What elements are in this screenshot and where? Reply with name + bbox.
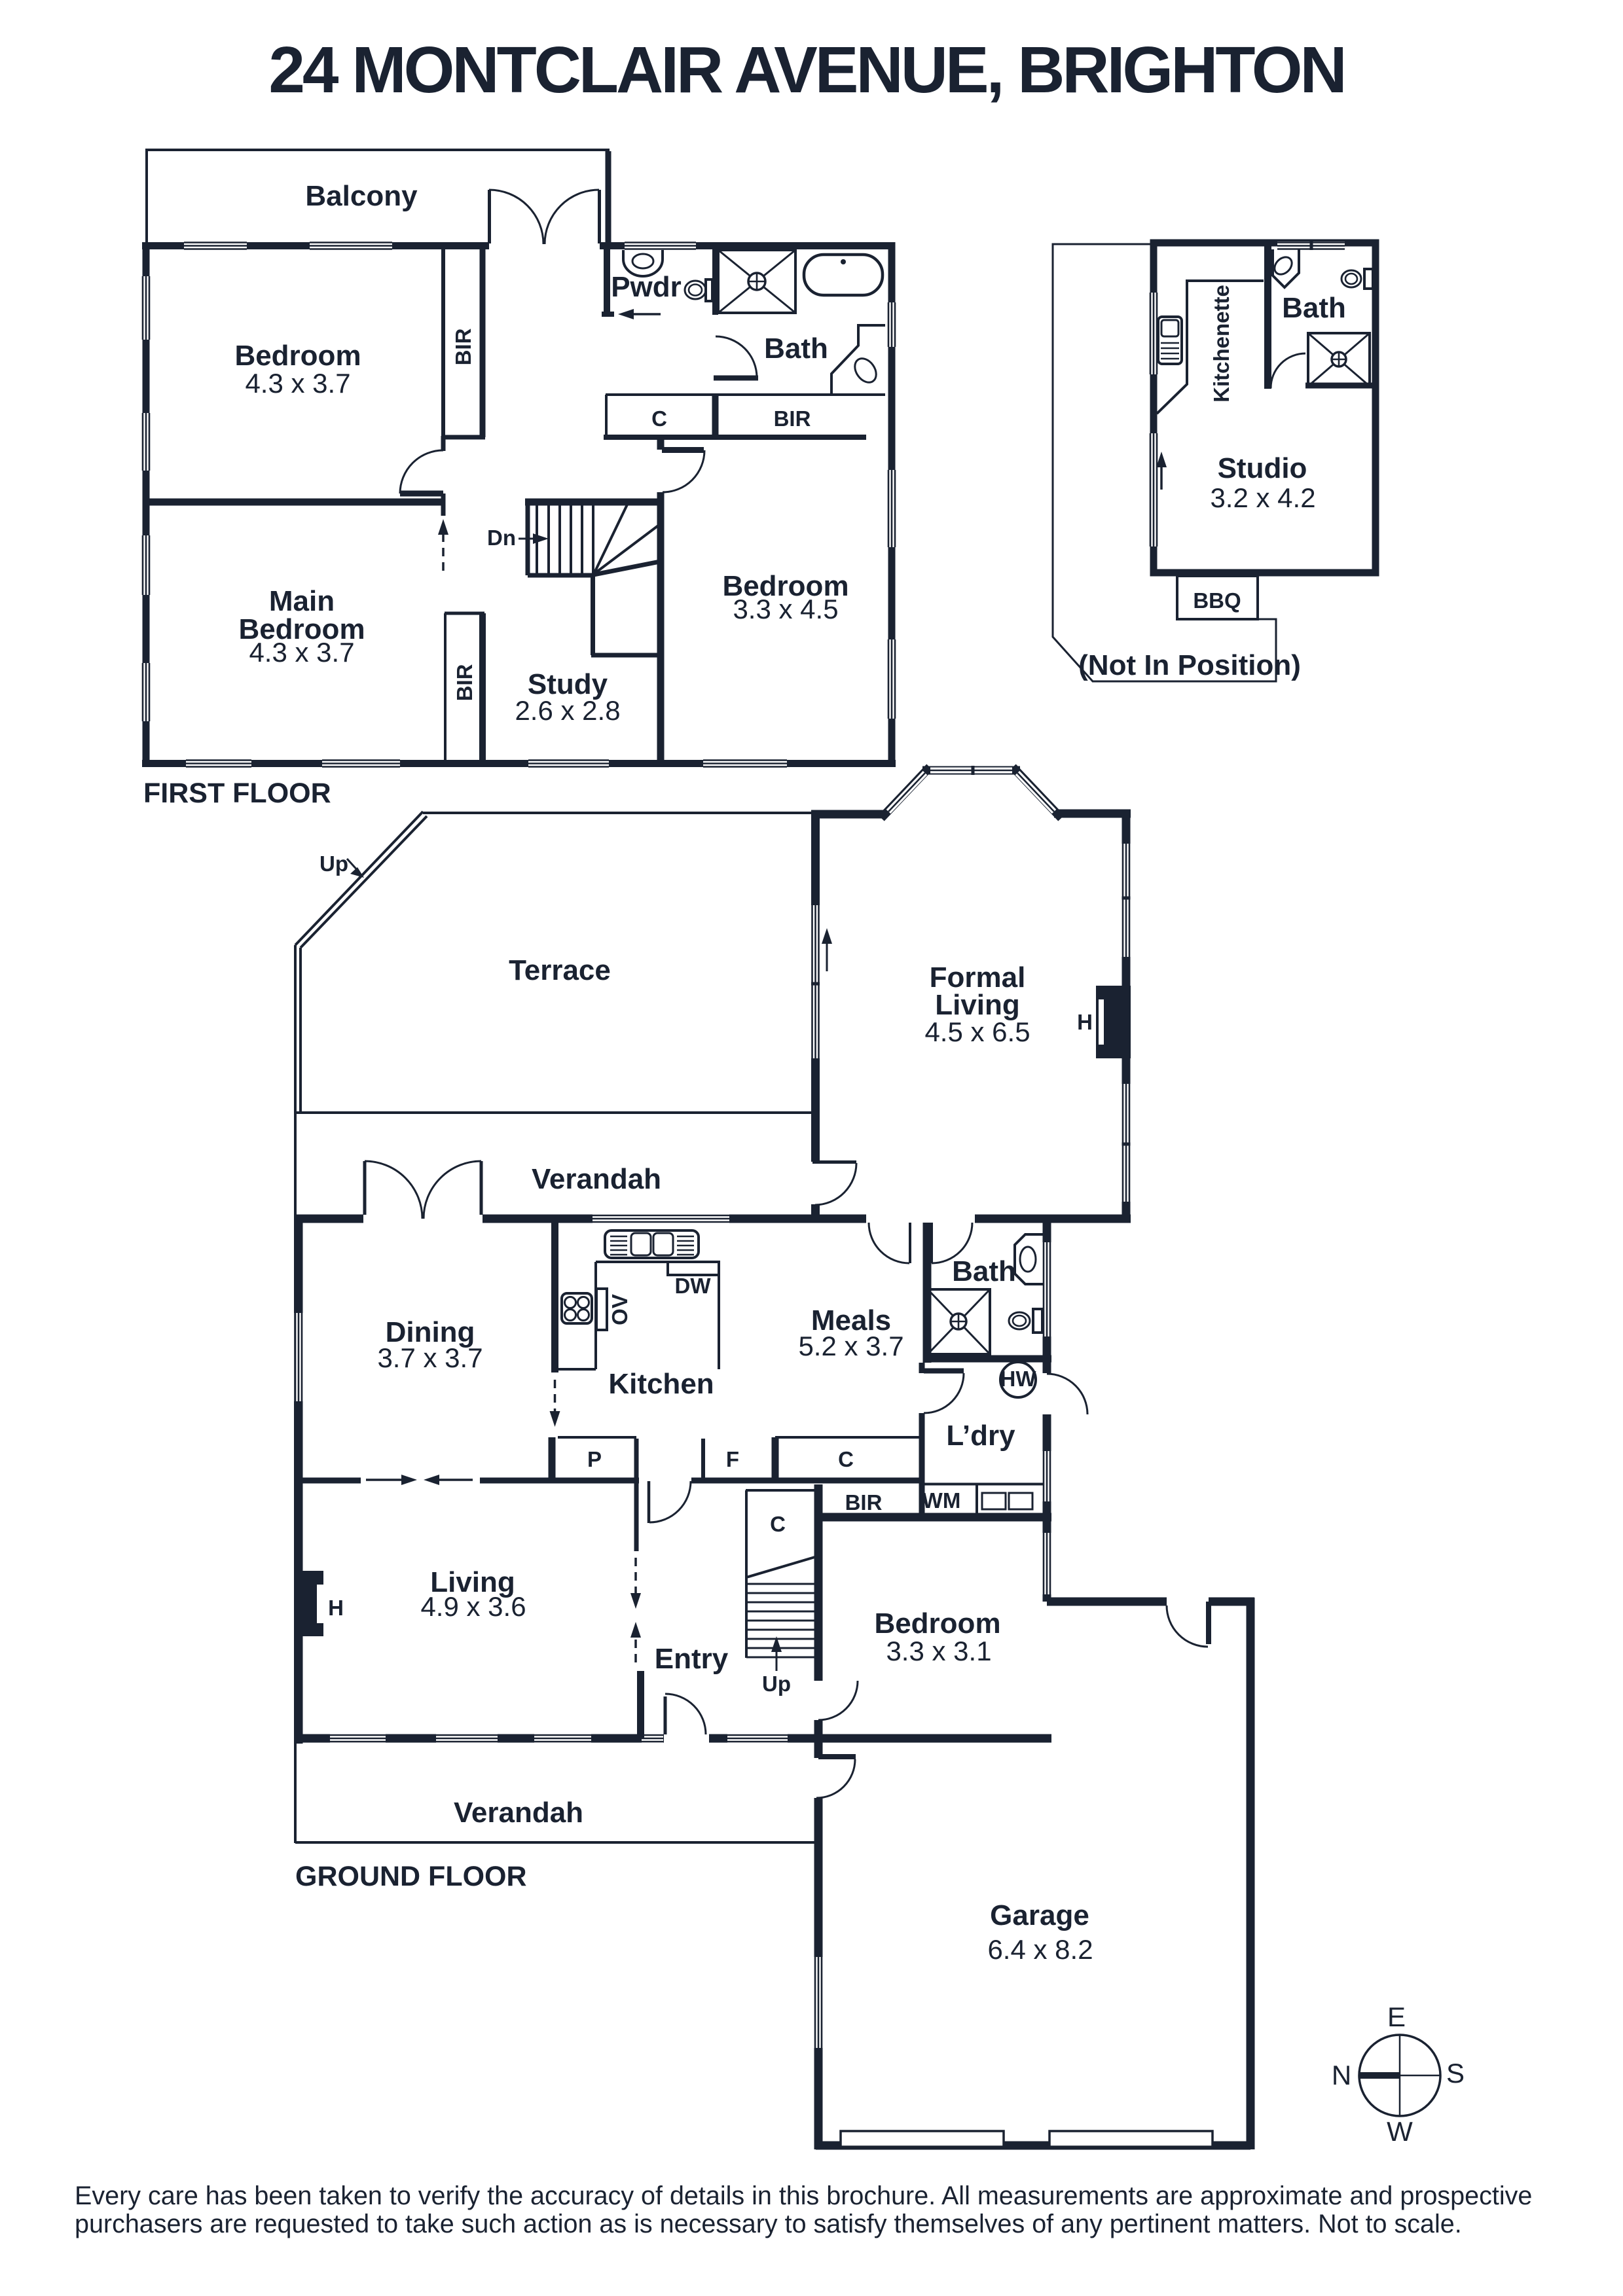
svg-text:purchasers are requested to ta: purchasers are requested to take such ac… xyxy=(75,2210,1462,2238)
svg-text:Every care has been taken to v: Every care has been taken to verify the … xyxy=(75,2181,1532,2210)
svg-text:BIR: BIR xyxy=(451,328,475,365)
svg-text:5.2 x 3.7: 5.2 x 3.7 xyxy=(798,1331,903,1361)
svg-text:Dn: Dn xyxy=(487,526,516,550)
svg-text:BIR: BIR xyxy=(452,664,477,701)
svg-text:H: H xyxy=(1077,1010,1093,1034)
svg-text:4.3 x 3.7: 4.3 x 3.7 xyxy=(245,368,350,399)
svg-text:Up: Up xyxy=(319,852,348,876)
svg-text:Garage: Garage xyxy=(990,1899,1089,1931)
svg-text:Balcony: Balcony xyxy=(305,180,418,212)
svg-text:3.2 x 4.2: 3.2 x 4.2 xyxy=(1210,482,1315,513)
svg-text:DW: DW xyxy=(675,1274,712,1298)
svg-text:Kitchenette: Kitchenette xyxy=(1209,285,1233,403)
svg-text:(Not In Position): (Not In Position) xyxy=(1078,649,1301,681)
svg-text:OV: OV xyxy=(608,1294,632,1325)
svg-text:4.3 x 3.7: 4.3 x 3.7 xyxy=(249,637,354,668)
svg-text:Terrace: Terrace xyxy=(509,954,611,986)
svg-text:Entry: Entry xyxy=(655,1643,729,1675)
svg-text:4.5 x 6.5: 4.5 x 6.5 xyxy=(924,1016,1030,1047)
svg-text:GROUND FLOOR: GROUND FLOOR xyxy=(295,1861,527,1892)
svg-text:Main: Main xyxy=(269,585,335,617)
svg-text:S: S xyxy=(1446,2058,1465,2089)
svg-text:C: C xyxy=(651,406,667,431)
svg-text:Verandah: Verandah xyxy=(454,1797,583,1829)
svg-text:Bedroom: Bedroom xyxy=(234,340,361,372)
svg-text:HW: HW xyxy=(1000,1367,1037,1391)
svg-text:WM: WM xyxy=(922,1488,961,1513)
svg-text:3.7 x 3.7: 3.7 x 3.7 xyxy=(377,1342,483,1373)
svg-text:6.4 x 8.2: 6.4 x 8.2 xyxy=(987,1934,1093,1965)
svg-text:P: P xyxy=(587,1447,602,1471)
svg-text:BIR: BIR xyxy=(845,1490,883,1515)
svg-text:Bath: Bath xyxy=(1282,292,1346,324)
svg-text:Bath: Bath xyxy=(952,1255,1016,1287)
svg-text:E: E xyxy=(1387,2001,1406,2032)
svg-text:Bath: Bath xyxy=(764,332,828,365)
svg-text:H: H xyxy=(328,1596,344,1620)
svg-text:3.3 x 4.5: 3.3 x 4.5 xyxy=(733,594,838,624)
svg-text:L’dry: L’dry xyxy=(946,1420,1015,1452)
svg-text:Studio: Studio xyxy=(1218,452,1307,484)
svg-text:Bedroom: Bedroom xyxy=(874,1607,1000,1640)
svg-text:Verandah: Verandah xyxy=(532,1163,661,1195)
svg-text:F: F xyxy=(726,1447,739,1471)
svg-text:Kitchen: Kitchen xyxy=(608,1368,714,1400)
svg-text:C: C xyxy=(838,1447,854,1471)
svg-text:4.9 x 3.6: 4.9 x 3.6 xyxy=(420,1591,526,1622)
svg-text:C: C xyxy=(770,1512,786,1536)
svg-text:BBQ: BBQ xyxy=(1193,588,1241,613)
svg-text:3.3 x 3.1: 3.3 x 3.1 xyxy=(886,1636,991,1666)
svg-text:24 MONTCLAIR AVENUE, BRIGHTON: 24 MONTCLAIR AVENUE, BRIGHTON xyxy=(268,33,1344,107)
svg-text:FIRST FLOOR: FIRST FLOOR xyxy=(143,778,331,809)
svg-text:N: N xyxy=(1332,2060,1351,2090)
svg-text:W: W xyxy=(1387,2116,1413,2147)
svg-text:BIR: BIR xyxy=(774,406,811,431)
svg-text:Pwdr: Pwdr xyxy=(611,271,682,303)
svg-text:2.6 x 2.8: 2.6 x 2.8 xyxy=(515,695,620,726)
svg-text:Up: Up xyxy=(762,1672,791,1696)
